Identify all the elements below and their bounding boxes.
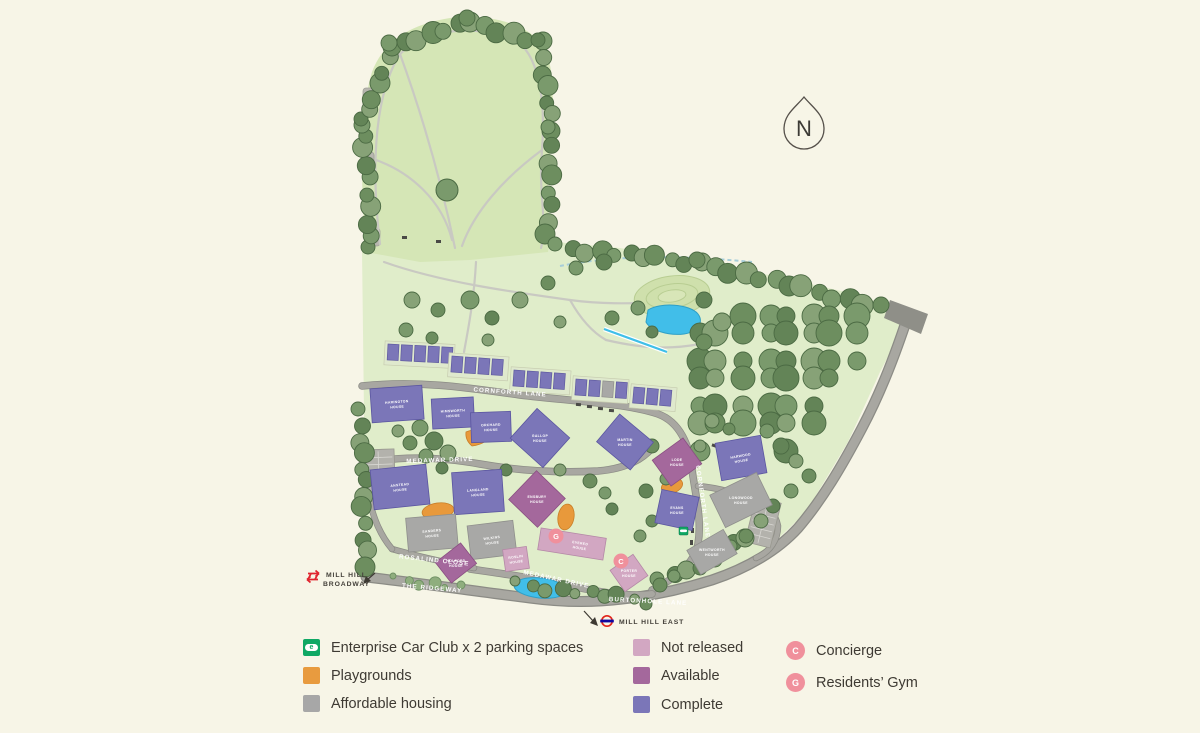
legend-label-car-club: Enterprise Car Club x 2 parking spaces [331,640,583,656]
legend-label-available: Available [661,668,720,684]
legend-label-concierge: Concierge [816,643,882,659]
gym-badge[interactable]: G [549,529,564,544]
legend-item-gym: G Residents’ Gym [786,673,918,692]
playgrounds-swatch [303,667,320,684]
legend-label-affordable: Affordable housing [331,696,452,712]
gym-badge-icon: G [786,673,805,692]
svg-text:MARTIN: MARTIN [617,438,632,442]
svg-text:LODE: LODE [672,458,683,462]
building-orchard[interactable]: ORCHARD HOUSE [470,411,511,442]
building-evans[interactable]: EVANS HOUSE [655,489,699,530]
legend-item-concierge: C Concierge [786,641,882,660]
legend-label-complete: Complete [661,697,723,713]
svg-text:WENTWORTH: WENTWORTH [699,548,725,552]
svg-text:MILL HILL EAST: MILL HILL EAST [619,619,684,626]
svg-text:HOUSE: HOUSE [533,439,547,443]
svg-text:HOUSE: HOUSE [734,501,748,505]
building-roslin[interactable]: ROSLIN HOUSE [503,546,530,571]
svg-text:BROADWAY: BROADWAY [323,581,370,588]
svg-text:LONGWOOD: LONGWOOD [729,496,753,500]
building-sanders[interactable]: SANDERS HOUSE [406,514,459,552]
svg-text:EVANS: EVANS [670,506,684,510]
affordable-swatch [303,695,320,712]
underground-roundel-icon [600,616,614,626]
building-harwood[interactable]: HARWOOD HOUSE [715,435,767,480]
legend-item-complete: Complete [633,696,723,713]
svg-text:G: G [553,532,559,541]
available-swatch [633,667,650,684]
site-map: HARINGTON HOUSE HIMSWORTH HOUSE ORCHARD … [0,0,1200,733]
svg-text:HOUSE: HOUSE [670,511,684,515]
legend-item-affordable: Affordable housing [303,695,452,712]
svg-text:HOUSE: HOUSE [622,574,636,578]
svg-text:HOUSE: HOUSE [530,500,544,504]
concierge-badge-icon: C [786,641,805,660]
station-mill-hill-east: MILL HILL EAST [584,611,684,626]
legend-label-not-released: Not released [661,640,743,656]
car-club-space-icon [679,527,688,535]
site-plan-page: HARINGTON HOUSE HIMSWORTH HOUSE ORCHARD … [0,0,1200,733]
station-mill-hill-broadway: MILL HILL BROADWAY [307,571,375,589]
legend-item-not-released: Not released [633,639,743,656]
legend-item-car-club: e Enterprise Car Club x 2 parking spaces [303,639,583,656]
park-tree-circle [436,179,458,201]
legend-label-gym: Residents’ Gym [816,675,918,691]
svg-text:ENSBURY: ENSBURY [528,495,547,499]
concierge-badge[interactable]: C [614,554,629,569]
svg-text:C: C [618,557,624,566]
legend-label-playgrounds: Playgrounds [331,668,412,684]
enterprise-logo-icon: e [305,644,318,651]
building-himsworth[interactable]: HIMSWORTH HOUSE [431,397,475,429]
svg-text:PORTER: PORTER [621,569,637,573]
svg-text:GALLOP: GALLOP [532,434,549,438]
svg-text:HOUSE: HOUSE [670,463,684,467]
svg-text:MILL HILL: MILL HILL [326,572,367,579]
svg-text:HOUSE: HOUSE [618,443,632,447]
complete-swatch [633,696,650,713]
national-rail-icon [307,571,319,583]
north-label: N [796,116,812,141]
svg-text:HOUSE: HOUSE [705,553,719,557]
legend-item-available: Available [633,667,720,684]
building-langland[interactable]: LANGLAND HOUSE [452,469,505,514]
building-anstead[interactable]: ANSTEAD HOUSE [370,464,430,510]
car-club-swatch: e [303,639,320,656]
not-released-swatch [633,639,650,656]
legend-item-playgrounds: Playgrounds [303,667,412,684]
north-marker: N [784,97,824,149]
svg-text:ORCHARD: ORCHARD [481,423,501,428]
svg-text:HOUSE: HOUSE [446,414,460,419]
building-harington[interactable]: HARINGTON HOUSE [370,385,424,423]
svg-text:HOUSE: HOUSE [484,428,498,432]
